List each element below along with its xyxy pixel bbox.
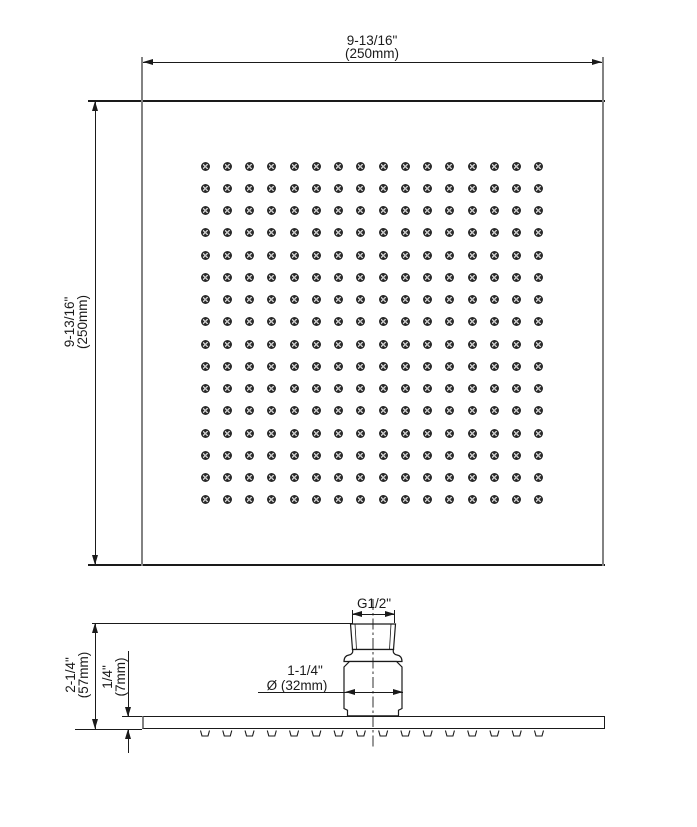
nozzle — [290, 362, 299, 371]
nozzle — [267, 362, 276, 371]
nozzle — [267, 162, 276, 171]
nozzle — [534, 162, 543, 171]
nozzle — [245, 317, 254, 326]
nozzle — [512, 317, 521, 326]
nozzle — [534, 429, 543, 438]
nozzle — [201, 473, 210, 482]
nozzle — [401, 162, 410, 171]
nozzle — [534, 228, 543, 237]
nozzle — [445, 495, 454, 504]
nozzle — [334, 384, 343, 393]
nozzle — [445, 162, 454, 171]
nozzle — [468, 295, 477, 304]
nozzle — [245, 340, 254, 349]
nozzle — [534, 473, 543, 482]
nozzle — [334, 273, 343, 282]
square-left-edge — [141, 57, 143, 566]
nozzle — [490, 495, 499, 504]
nozzle — [312, 340, 321, 349]
nozzle — [334, 473, 343, 482]
nozzle — [379, 295, 388, 304]
connector-top-extension-line — [92, 623, 353, 624]
nozzle — [201, 317, 210, 326]
nozzle — [445, 362, 454, 371]
nozzle — [334, 495, 343, 504]
height-arrow-top — [92, 101, 98, 111]
nozzle — [445, 340, 454, 349]
square-top-edge — [88, 100, 605, 102]
nozzle — [534, 340, 543, 349]
overall-height-arrow-top — [92, 623, 98, 633]
plate-thickness-metric: (7mm) — [114, 658, 127, 697]
nozzle — [223, 273, 232, 282]
nozzle — [468, 273, 477, 282]
nozzle — [290, 340, 299, 349]
thread-ext-left — [352, 610, 353, 623]
nozzle — [334, 406, 343, 415]
nozzle — [423, 384, 432, 393]
nozzle — [512, 206, 521, 215]
nozzle — [245, 429, 254, 438]
overall-height-arrow-bottom — [92, 719, 98, 729]
nozzle — [490, 340, 499, 349]
nozzle — [445, 473, 454, 482]
connector-fitting — [330, 596, 420, 751]
nozzle — [290, 184, 299, 193]
nozzle — [267, 429, 276, 438]
nozzle — [401, 228, 410, 237]
nozzle — [534, 295, 543, 304]
nozzle — [312, 295, 321, 304]
nozzle — [312, 184, 321, 193]
diameter-arrow-left — [345, 689, 355, 695]
thread-label: G1/2" — [357, 598, 391, 611]
nozzle — [201, 184, 210, 193]
nozzle — [534, 406, 543, 415]
square-right-edge — [602, 57, 604, 566]
nozzle — [468, 406, 477, 415]
nozzle — [267, 451, 276, 460]
nozzle — [312, 228, 321, 237]
nozzle — [423, 495, 432, 504]
nozzle — [312, 495, 321, 504]
nozzle — [245, 206, 254, 215]
nozzle — [379, 206, 388, 215]
nozzle — [379, 317, 388, 326]
nozzle — [223, 162, 232, 171]
nozzle — [423, 184, 432, 193]
nozzle — [290, 317, 299, 326]
nozzle — [312, 384, 321, 393]
nozzle — [468, 317, 477, 326]
nozzle — [356, 228, 365, 237]
nozzle — [312, 251, 321, 260]
nozzle — [468, 184, 477, 193]
nozzle — [245, 362, 254, 371]
diameter-inches: 1-1/4" — [287, 665, 323, 678]
nozzle — [468, 206, 477, 215]
nozzle — [290, 451, 299, 460]
nozzle — [245, 162, 254, 171]
nozzle — [201, 451, 210, 460]
nozzle — [512, 340, 521, 349]
nozzle — [312, 273, 321, 282]
nozzle — [512, 473, 521, 482]
nozzle — [423, 451, 432, 460]
nozzle — [401, 495, 410, 504]
nozzle — [356, 495, 365, 504]
technical-drawing: 9-13/16" (250mm) 9-13/16" (250mm) — [0, 0, 697, 827]
nozzle — [445, 451, 454, 460]
nozzle — [312, 317, 321, 326]
nozzle — [490, 206, 499, 215]
nozzle — [468, 228, 477, 237]
nozzle — [267, 495, 276, 504]
nozzle — [223, 184, 232, 193]
nozzle — [490, 317, 499, 326]
nozzle — [379, 184, 388, 193]
nozzle — [223, 340, 232, 349]
nozzle — [267, 206, 276, 215]
nozzle — [401, 184, 410, 193]
nozzle — [401, 473, 410, 482]
nozzle — [312, 406, 321, 415]
nozzle — [490, 162, 499, 171]
nozzle — [356, 473, 365, 482]
nozzle — [379, 251, 388, 260]
nozzle — [201, 495, 210, 504]
nozzle — [356, 451, 365, 460]
diameter-dim-line — [258, 692, 403, 693]
nozzle — [423, 406, 432, 415]
thread-arrow-left — [352, 611, 362, 617]
nozzle — [401, 406, 410, 415]
nozzle — [223, 384, 232, 393]
nozzle — [468, 429, 477, 438]
nozzle — [290, 429, 299, 438]
nozzle — [534, 362, 543, 371]
nozzle — [512, 251, 521, 260]
nozzle — [401, 451, 410, 460]
nozzle — [356, 317, 365, 326]
nozzle — [334, 162, 343, 171]
nozzle — [290, 251, 299, 260]
nozzle — [223, 429, 232, 438]
nozzle — [423, 295, 432, 304]
plate-thickness-label: 1/4" (7mm) — [101, 658, 127, 697]
nozzle — [312, 451, 321, 460]
nozzle — [267, 473, 276, 482]
nozzle — [401, 384, 410, 393]
nozzle — [223, 362, 232, 371]
nozzle — [423, 228, 432, 237]
nozzle — [534, 384, 543, 393]
thread-ext-right — [394, 610, 395, 623]
nozzle — [267, 317, 276, 326]
nozzle — [201, 162, 210, 171]
nozzle — [512, 495, 521, 504]
nozzle — [267, 384, 276, 393]
width-dimension-label: 9-13/16" (250mm) — [345, 35, 399, 60]
nozzle — [468, 451, 477, 460]
nozzle — [312, 206, 321, 215]
nozzle — [245, 384, 254, 393]
nozzle — [534, 495, 543, 504]
nozzle — [223, 228, 232, 237]
nozzle — [445, 295, 454, 304]
nozzle — [423, 251, 432, 260]
nozzle — [401, 251, 410, 260]
nozzle — [468, 495, 477, 504]
nozzle — [534, 273, 543, 282]
nozzle — [223, 251, 232, 260]
nozzle — [356, 295, 365, 304]
height-arrow-bottom — [92, 555, 98, 565]
nozzle — [401, 206, 410, 215]
nozzle — [512, 429, 521, 438]
nozzle — [379, 228, 388, 237]
diameter-arrow-right — [393, 689, 403, 695]
nozzle — [512, 451, 521, 460]
nozzle — [423, 340, 432, 349]
nozzle — [534, 184, 543, 193]
nozzle — [267, 273, 276, 282]
nozzle — [334, 295, 343, 304]
nozzle — [379, 162, 388, 171]
nozzle — [267, 228, 276, 237]
nozzle — [223, 317, 232, 326]
height-dimension-label: 9-13/16" (250mm) — [63, 295, 89, 349]
nozzle — [423, 206, 432, 215]
nozzle — [490, 273, 499, 282]
nozzle — [401, 429, 410, 438]
nozzle — [312, 162, 321, 171]
nozzle — [401, 340, 410, 349]
nozzle — [445, 384, 454, 393]
nozzle — [512, 273, 521, 282]
nozzle — [534, 451, 543, 460]
nozzle — [468, 251, 477, 260]
nozzle — [201, 295, 210, 304]
height-metric: (250mm) — [76, 295, 89, 349]
nozzle — [245, 273, 254, 282]
nozzle — [379, 406, 388, 415]
nozzle — [512, 162, 521, 171]
nozzle — [290, 473, 299, 482]
nozzle — [201, 206, 210, 215]
nozzle — [379, 473, 388, 482]
nozzle — [245, 295, 254, 304]
nozzle — [379, 362, 388, 371]
nozzle — [512, 228, 521, 237]
nozzle — [423, 273, 432, 282]
nozzle — [245, 251, 254, 260]
nozzle — [512, 384, 521, 393]
nozzle — [379, 384, 388, 393]
nozzle — [445, 317, 454, 326]
nozzle — [223, 495, 232, 504]
nozzle — [356, 206, 365, 215]
nozzle — [223, 451, 232, 460]
nozzle — [356, 429, 365, 438]
nozzle — [490, 295, 499, 304]
nozzle — [290, 273, 299, 282]
nozzle — [223, 295, 232, 304]
nozzle — [312, 429, 321, 438]
nozzle — [490, 384, 499, 393]
nozzle — [290, 206, 299, 215]
nozzle — [445, 206, 454, 215]
nozzle — [534, 317, 543, 326]
nozzle — [312, 362, 321, 371]
nozzle — [245, 228, 254, 237]
nozzle — [334, 362, 343, 371]
plate-bottom-extension-line — [75, 729, 142, 730]
nozzle — [245, 451, 254, 460]
nozzle — [356, 362, 365, 371]
nozzle — [379, 495, 388, 504]
nozzle — [201, 273, 210, 282]
nozzle — [334, 317, 343, 326]
nozzle — [356, 251, 365, 260]
nozzle — [267, 406, 276, 415]
nozzle — [445, 273, 454, 282]
nozzle — [379, 451, 388, 460]
nozzle — [468, 162, 477, 171]
diameter-metric: Ø (32mm) — [267, 680, 328, 693]
nozzle — [334, 251, 343, 260]
nozzle — [223, 406, 232, 415]
nozzle — [223, 473, 232, 482]
nozzle — [245, 406, 254, 415]
nozzle — [334, 340, 343, 349]
nozzle — [490, 473, 499, 482]
nozzle — [423, 473, 432, 482]
nozzle — [490, 451, 499, 460]
overall-height-metric: (57mm) — [77, 652, 90, 699]
nozzle — [334, 206, 343, 215]
nozzle — [290, 162, 299, 171]
nozzle — [423, 429, 432, 438]
nozzle — [312, 473, 321, 482]
nozzle — [490, 429, 499, 438]
nozzle — [445, 251, 454, 260]
nozzle — [534, 251, 543, 260]
overall-height-line — [95, 623, 96, 729]
width-dimension-line — [143, 62, 602, 63]
nozzle — [512, 295, 521, 304]
nozzle — [201, 362, 210, 371]
nozzle — [356, 273, 365, 282]
nozzle — [245, 473, 254, 482]
nozzle — [512, 406, 521, 415]
nozzle — [201, 406, 210, 415]
nozzle — [423, 162, 432, 171]
nozzle — [401, 295, 410, 304]
nozzle — [201, 251, 210, 260]
nozzle — [201, 429, 210, 438]
nozzle — [290, 228, 299, 237]
nozzle — [267, 295, 276, 304]
nozzle — [512, 184, 521, 193]
nozzle — [334, 228, 343, 237]
nozzle — [223, 206, 232, 215]
nozzle — [401, 317, 410, 326]
nozzle — [290, 495, 299, 504]
nozzle — [445, 429, 454, 438]
nozzle — [334, 429, 343, 438]
nozzle — [534, 206, 543, 215]
nozzle — [445, 406, 454, 415]
nozzle — [423, 317, 432, 326]
width-arrow-right — [592, 59, 602, 65]
nozzle — [445, 184, 454, 193]
nozzle — [356, 340, 365, 349]
nozzle — [201, 384, 210, 393]
nozzle — [423, 362, 432, 371]
nozzle — [245, 184, 254, 193]
nozzle — [356, 406, 365, 415]
nozzle — [490, 251, 499, 260]
width-arrow-left — [143, 59, 153, 65]
nozzle — [356, 162, 365, 171]
width-metric: (250mm) — [345, 48, 399, 61]
nozzle — [468, 340, 477, 349]
height-dimension-line — [95, 101, 96, 565]
nozzle — [401, 362, 410, 371]
plate-thickness-arrow-up — [125, 729, 131, 739]
nozzle — [334, 184, 343, 193]
nozzle — [379, 273, 388, 282]
overall-height-label: 2-1/4" (57mm) — [64, 652, 90, 699]
nozzle — [490, 184, 499, 193]
nozzle — [468, 384, 477, 393]
square-bottom-edge — [88, 564, 605, 566]
nozzle — [267, 184, 276, 193]
nozzle — [468, 473, 477, 482]
nozzle — [267, 251, 276, 260]
nozzle — [468, 362, 477, 371]
nozzle — [490, 406, 499, 415]
nozzle — [512, 362, 521, 371]
nozzle — [379, 340, 388, 349]
nozzle — [201, 340, 210, 349]
nozzle — [356, 184, 365, 193]
nozzle — [445, 228, 454, 237]
nozzle — [290, 384, 299, 393]
nozzle — [290, 406, 299, 415]
nozzle — [245, 495, 254, 504]
nozzle — [201, 228, 210, 237]
nozzle — [334, 451, 343, 460]
nozzle — [356, 384, 365, 393]
nozzle — [267, 340, 276, 349]
nozzle — [490, 362, 499, 371]
nozzle — [401, 273, 410, 282]
plate-thickness-arrow-down — [125, 707, 131, 717]
nozzle — [379, 429, 388, 438]
nozzle — [490, 228, 499, 237]
nozzle — [290, 295, 299, 304]
